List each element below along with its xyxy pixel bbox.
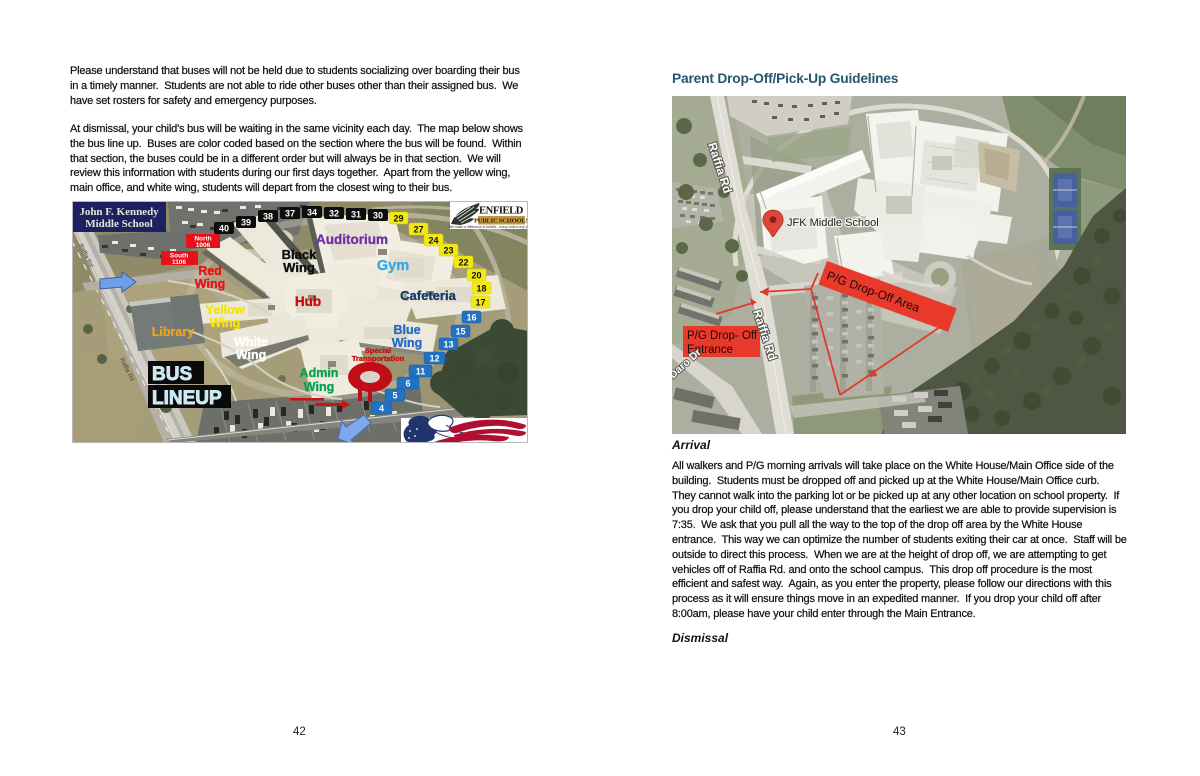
svg-text:15: 15 xyxy=(455,327,465,337)
svg-text:Wing: Wing xyxy=(392,336,422,350)
svg-text:P/G Drop- Off: P/G Drop- Off xyxy=(687,330,758,342)
svg-text:Red: Red xyxy=(198,264,222,278)
svg-text:4: 4 xyxy=(379,404,384,414)
svg-text:39: 39 xyxy=(241,218,251,228)
svg-text:40: 40 xyxy=(219,224,229,234)
svg-text:Cafeteria: Cafeteria xyxy=(400,288,456,303)
svg-text:20: 20 xyxy=(471,271,481,281)
svg-text:ENFIELD: ENFIELD xyxy=(479,206,524,217)
svg-text:We make a difference in belief: We make a difference in beliefs - every … xyxy=(449,225,528,229)
svg-text:1106: 1106 xyxy=(172,259,186,266)
svg-text:38: 38 xyxy=(263,212,273,222)
svg-text:John F. Kennedy: John F. Kennedy xyxy=(79,206,159,218)
svg-text:Wing: Wing xyxy=(195,277,225,291)
svg-text:Library: Library xyxy=(152,325,194,339)
svg-text:37: 37 xyxy=(285,209,295,219)
svg-text:BUS: BUS xyxy=(152,364,192,385)
svg-text:30: 30 xyxy=(373,211,383,221)
svg-text:34: 34 xyxy=(307,208,317,218)
svg-text:White: White xyxy=(234,335,268,349)
svg-text:23: 23 xyxy=(443,246,453,256)
svg-text:Wing: Wing xyxy=(304,380,334,394)
svg-text:Blue: Blue xyxy=(393,323,420,337)
svg-text:24: 24 xyxy=(428,236,438,246)
svg-text:12: 12 xyxy=(429,354,439,364)
svg-text:JFK Middle School: JFK Middle School xyxy=(787,217,879,229)
svg-text:Wing: Wing xyxy=(236,348,266,362)
svg-text:1006: 1006 xyxy=(196,242,211,249)
svg-text:32: 32 xyxy=(329,209,339,219)
svg-text:LINEUP: LINEUP xyxy=(152,388,222,409)
svg-text:Auditorium: Auditorium xyxy=(316,232,388,247)
svg-text:Wing: Wing xyxy=(210,316,240,330)
svg-text:31: 31 xyxy=(351,210,361,220)
svg-text:13: 13 xyxy=(443,340,453,350)
svg-text:16: 16 xyxy=(466,313,476,323)
svg-text:PUBLIC SCHOOLS: PUBLIC SCHOOLS xyxy=(474,218,528,225)
svg-text:22: 22 xyxy=(458,258,468,268)
svg-text:Yellow: Yellow xyxy=(206,303,245,317)
svg-text:Transportation: Transportation xyxy=(352,354,405,363)
svg-text:Wing: Wing xyxy=(283,260,315,275)
svg-text:17: 17 xyxy=(475,298,485,308)
svg-text:18: 18 xyxy=(476,284,486,294)
svg-text:29: 29 xyxy=(393,214,403,224)
svg-text:6: 6 xyxy=(405,379,410,389)
svg-text:Gym: Gym xyxy=(377,258,409,274)
svg-text:Hub: Hub xyxy=(295,294,321,309)
svg-text:27: 27 xyxy=(413,225,423,235)
svg-text:11: 11 xyxy=(416,367,426,377)
svg-text:Middle School: Middle School xyxy=(85,218,153,230)
svg-text:Admin: Admin xyxy=(300,366,339,380)
svg-text:5: 5 xyxy=(392,391,397,401)
